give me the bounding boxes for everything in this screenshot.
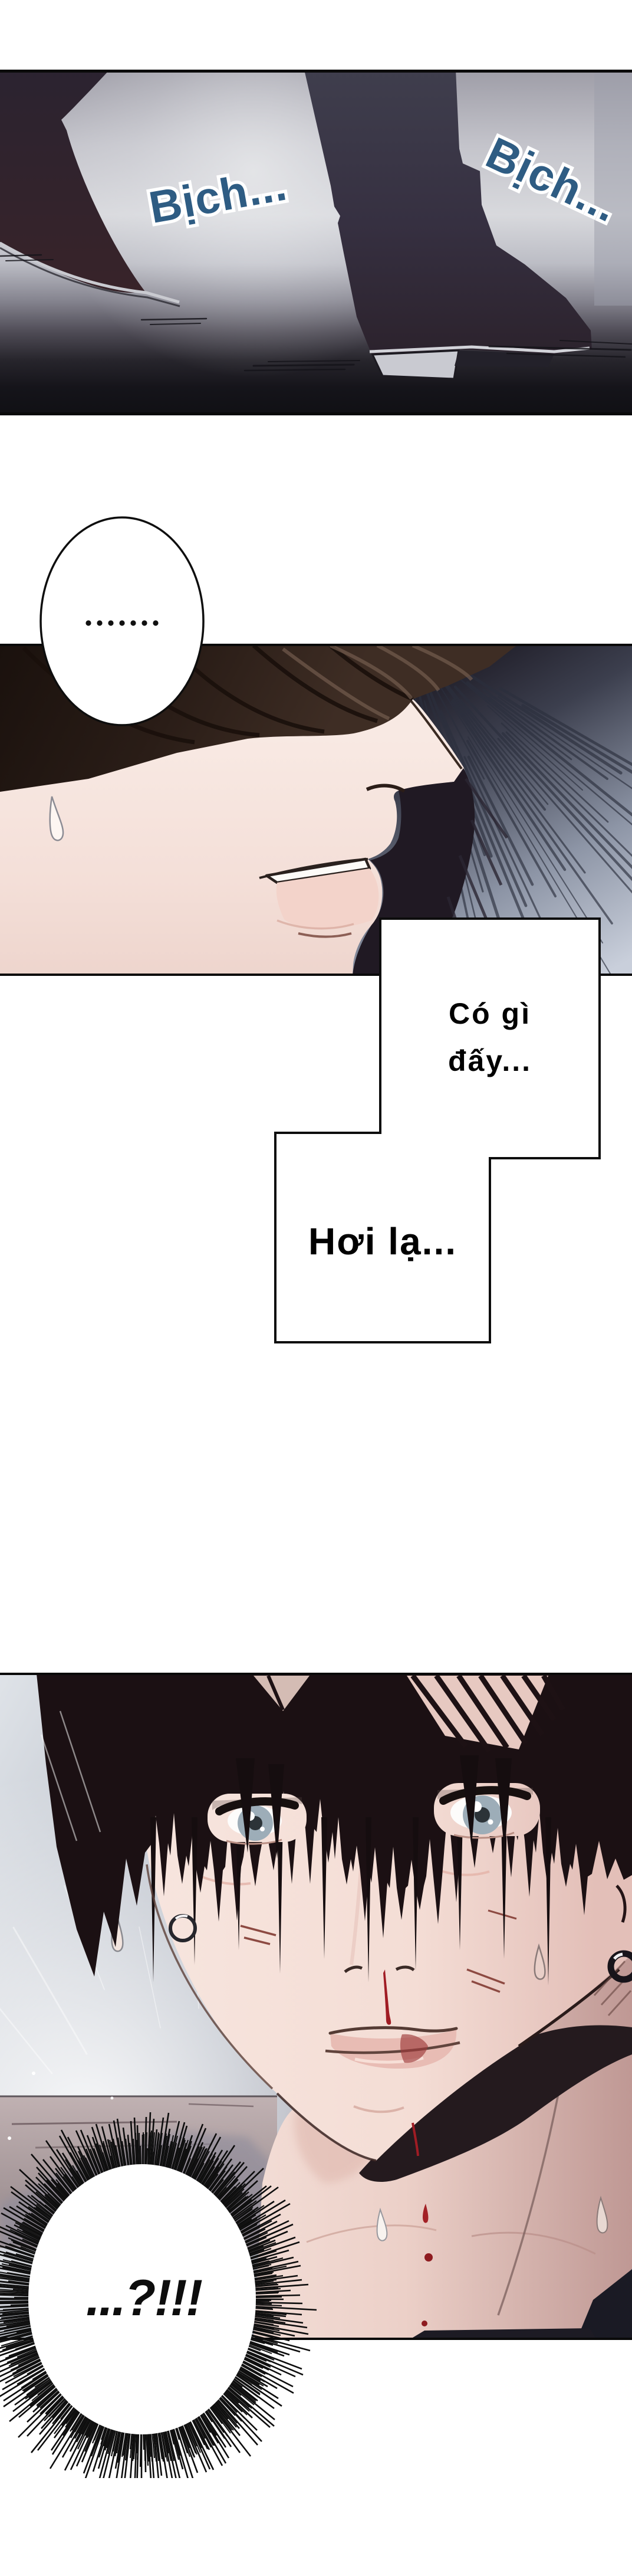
svg-text:...?!!!: ...?!!! — [86, 2270, 202, 2326]
